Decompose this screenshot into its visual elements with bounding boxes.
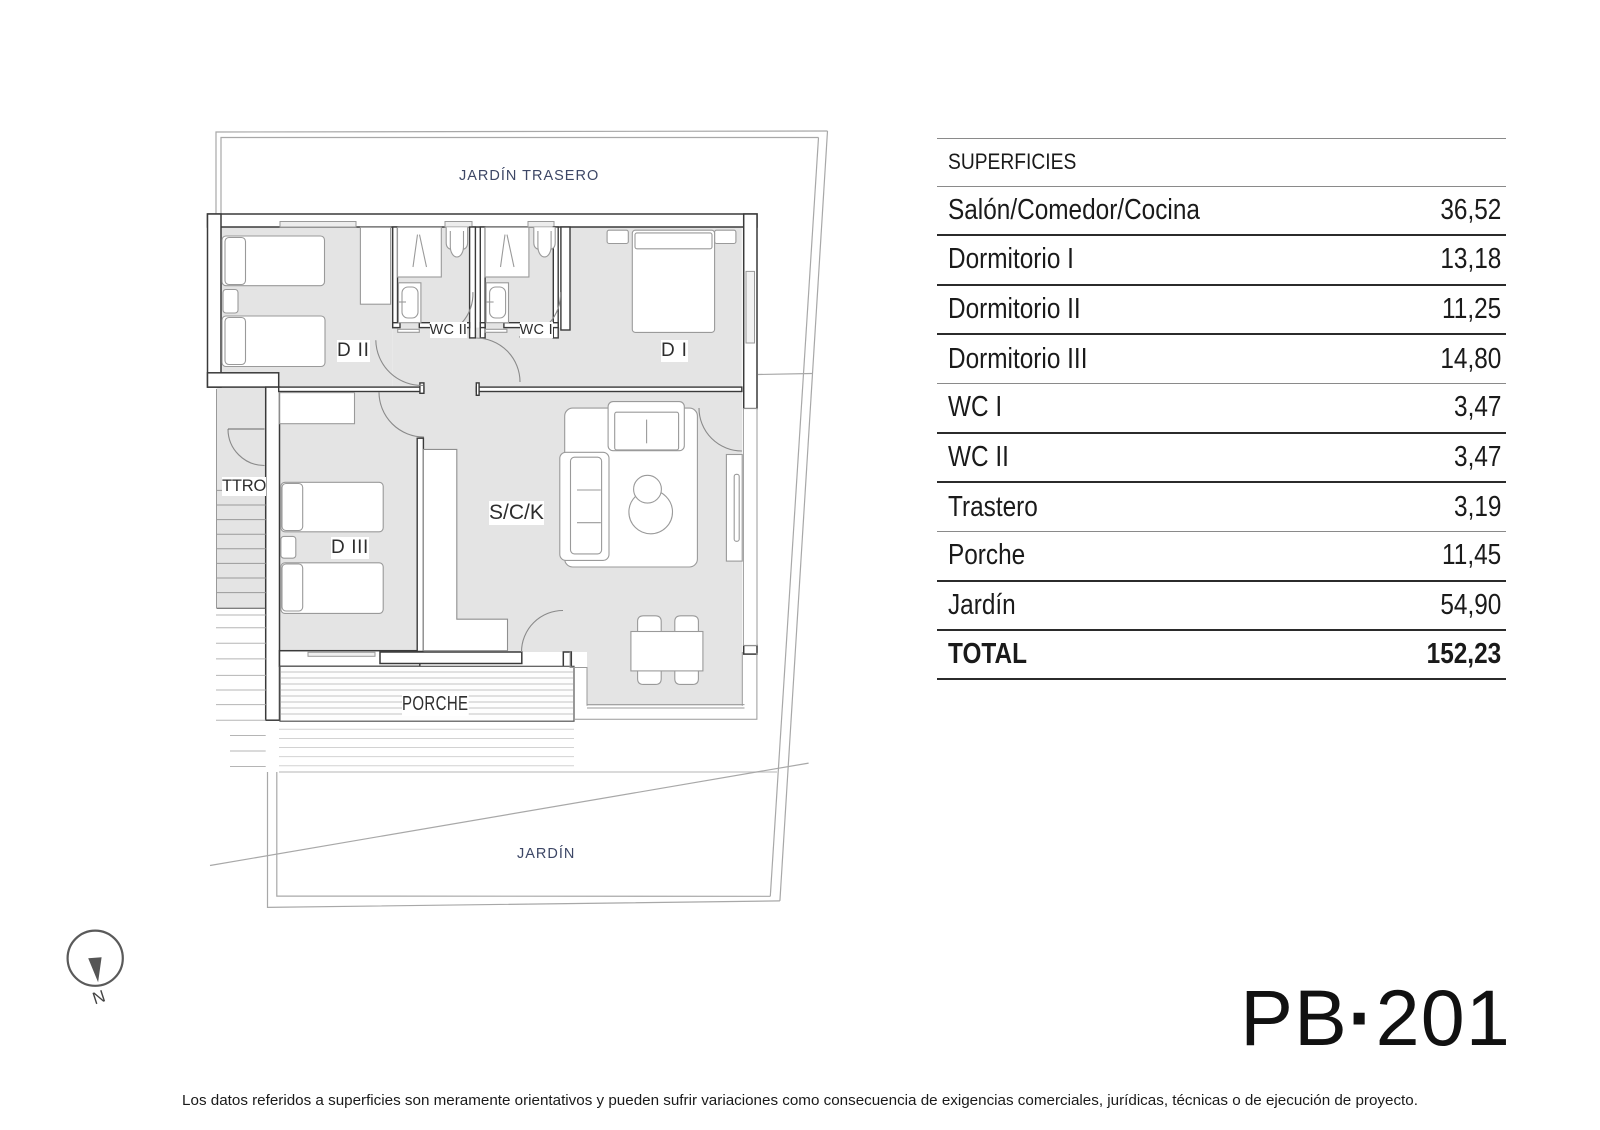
svg-text:N: N: [90, 986, 108, 1008]
